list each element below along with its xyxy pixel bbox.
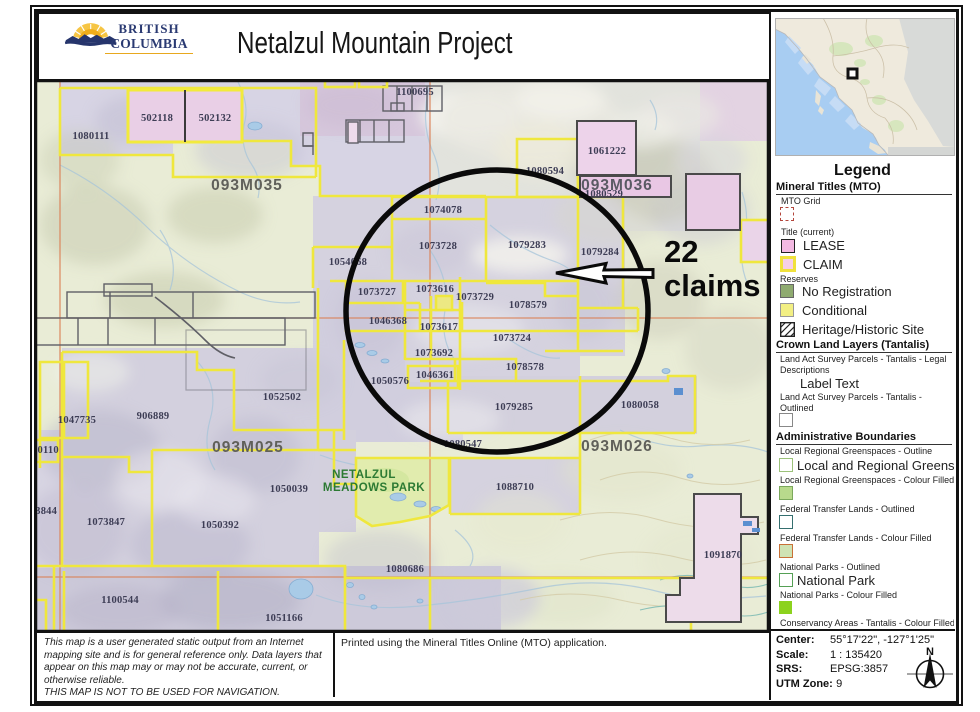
svg-text:1080110: 1080110 — [35, 445, 59, 456]
svg-text:1073847: 1073847 — [87, 517, 125, 528]
svg-text:502118: 502118 — [141, 113, 173, 124]
svg-text:502132: 502132 — [199, 113, 232, 124]
svg-text:1078578: 1078578 — [506, 362, 544, 373]
svg-text:1080686: 1080686 — [386, 564, 424, 575]
svg-text:1100695: 1100695 — [396, 87, 434, 98]
svg-text:1074078: 1074078 — [424, 205, 462, 216]
svg-text:1054068: 1054068 — [329, 257, 367, 268]
svg-text:1051166: 1051166 — [265, 613, 303, 624]
svg-text:1050576: 1050576 — [371, 376, 409, 387]
svg-text:1073724: 1073724 — [493, 333, 532, 344]
svg-text:1073729: 1073729 — [456, 292, 494, 303]
svg-text:1073728: 1073728 — [419, 241, 457, 252]
svg-text:claims: claims — [664, 268, 761, 303]
svg-text:1073692: 1073692 — [415, 348, 453, 359]
svg-text:1073727: 1073727 — [358, 287, 396, 298]
svg-text:NETALZUL: NETALZUL — [332, 469, 396, 481]
svg-text:1073844: 1073844 — [35, 506, 58, 517]
svg-text:1061222: 1061222 — [588, 146, 626, 157]
svg-text:906889: 906889 — [137, 411, 170, 422]
svg-text:1050392: 1050392 — [201, 520, 239, 531]
svg-text:1046361: 1046361 — [416, 370, 454, 381]
svg-text:093M025: 093M025 — [212, 439, 284, 456]
svg-text:1091870: 1091870 — [704, 550, 742, 561]
svg-text:22: 22 — [664, 234, 698, 269]
svg-text:1080111: 1080111 — [73, 131, 110, 142]
svg-text:1073616: 1073616 — [416, 284, 454, 295]
svg-text:1079284: 1079284 — [581, 247, 620, 258]
svg-text:1046368: 1046368 — [369, 316, 407, 327]
svg-text:1079285: 1079285 — [495, 402, 533, 413]
svg-text:1052502: 1052502 — [263, 392, 301, 403]
svg-text:1088710: 1088710 — [496, 482, 534, 493]
svg-text:093M026: 093M026 — [581, 438, 653, 455]
svg-text:1073617: 1073617 — [420, 322, 458, 333]
svg-text:1078579: 1078579 — [509, 300, 547, 311]
svg-text:MEADOWS PARK: MEADOWS PARK — [323, 482, 425, 494]
svg-text:1079283: 1079283 — [508, 240, 546, 251]
svg-text:1050039: 1050039 — [270, 484, 308, 495]
svg-text:093M035: 093M035 — [211, 177, 283, 194]
svg-text:1100544: 1100544 — [101, 595, 139, 606]
svg-text:1080058: 1080058 — [621, 400, 659, 411]
svg-text:1047735: 1047735 — [58, 415, 96, 426]
